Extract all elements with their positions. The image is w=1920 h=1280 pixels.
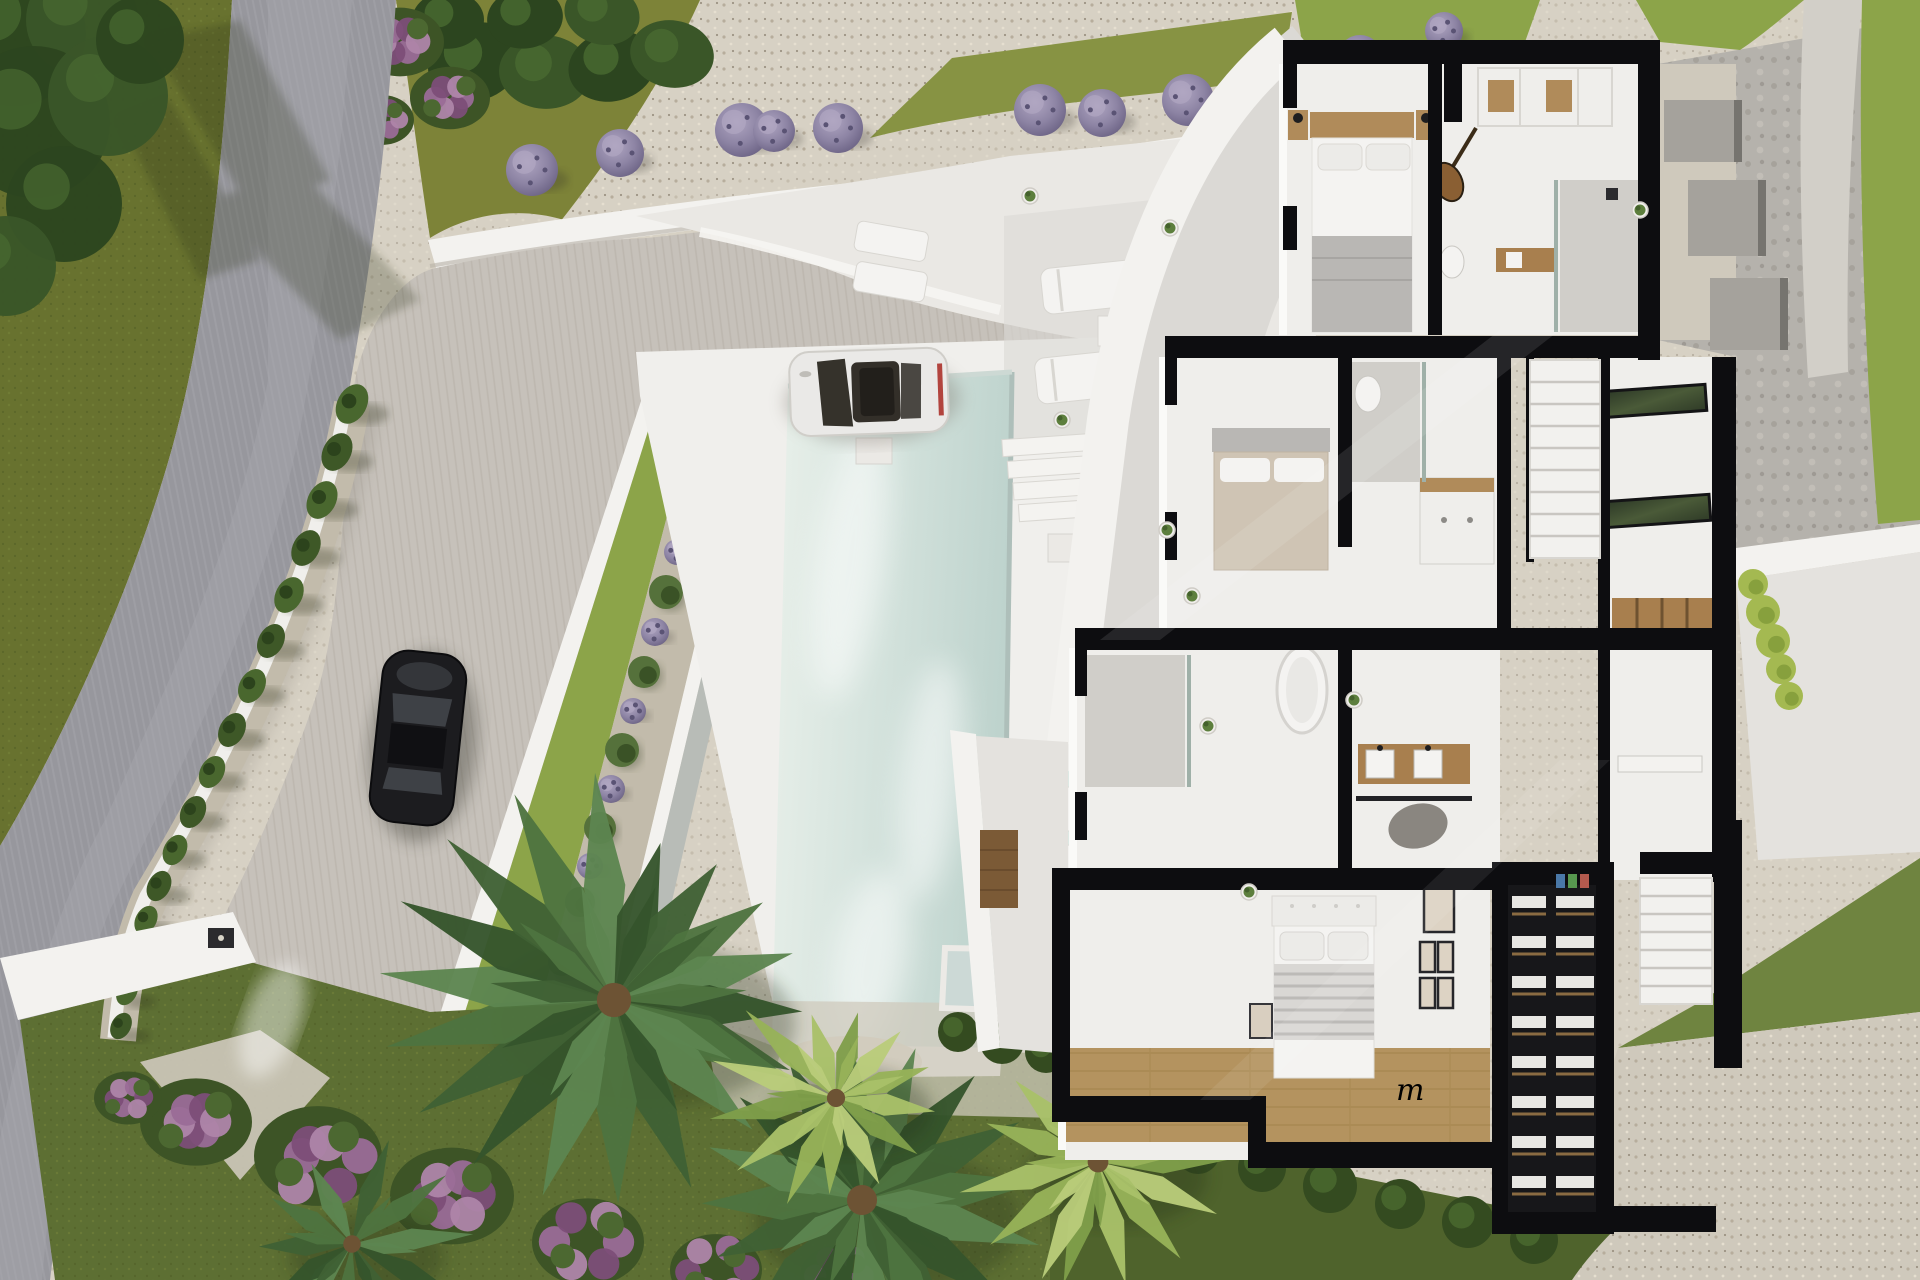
toilet-top — [1440, 246, 1464, 278]
bed-mid-pillow-1 — [1220, 458, 1270, 482]
vanity-top-sink — [1506, 252, 1522, 268]
hall-door — [1618, 756, 1702, 772]
master-headboard — [1272, 896, 1376, 926]
scene-canvas: m — [0, 0, 1920, 1280]
wardrobe — [1478, 68, 1612, 126]
wall-east-mid — [1712, 357, 1736, 882]
leaning-art-card — [1250, 1004, 1272, 1038]
shower-room-floor — [1560, 180, 1638, 332]
bed-mid-headboard — [1212, 428, 1330, 452]
glass-panel-2 — [1603, 494, 1711, 527]
master-pillow-1 — [1280, 932, 1324, 960]
toilet-mid — [1355, 376, 1381, 412]
towel-bar — [1356, 796, 1472, 801]
gate-lamp-light — [218, 935, 224, 941]
wall-east-top — [1638, 40, 1660, 360]
tub-inner — [1286, 657, 1318, 723]
bed-top-blanket — [1312, 236, 1412, 332]
wall-south-b — [1248, 1142, 1504, 1168]
right-terrace — [1736, 524, 1920, 860]
vanity-top — [1496, 248, 1554, 272]
wall-north — [1283, 40, 1660, 64]
dresser-wood-top — [1420, 478, 1494, 492]
lamp-left — [1293, 113, 1303, 123]
bed-top-headboard — [1310, 112, 1414, 138]
glass-panel-1 — [1601, 384, 1707, 417]
walkin-shower-floor — [1085, 655, 1185, 787]
wall-mid-1 — [1165, 336, 1660, 358]
walkin-closet-interior — [1508, 885, 1596, 1212]
white-car — [783, 347, 962, 447]
white-car-sunroof — [859, 367, 895, 416]
white-car-rear-glass — [899, 362, 923, 419]
m-decor-letter: m — [1396, 1073, 1424, 1108]
bed-top-pillow-2 — [1366, 144, 1410, 170]
bed-top-pillow-1 — [1318, 144, 1362, 170]
black-car-roof — [387, 723, 447, 769]
villa-aerial-render: m — [0, 0, 1920, 1280]
shower-head-top — [1606, 188, 1618, 200]
